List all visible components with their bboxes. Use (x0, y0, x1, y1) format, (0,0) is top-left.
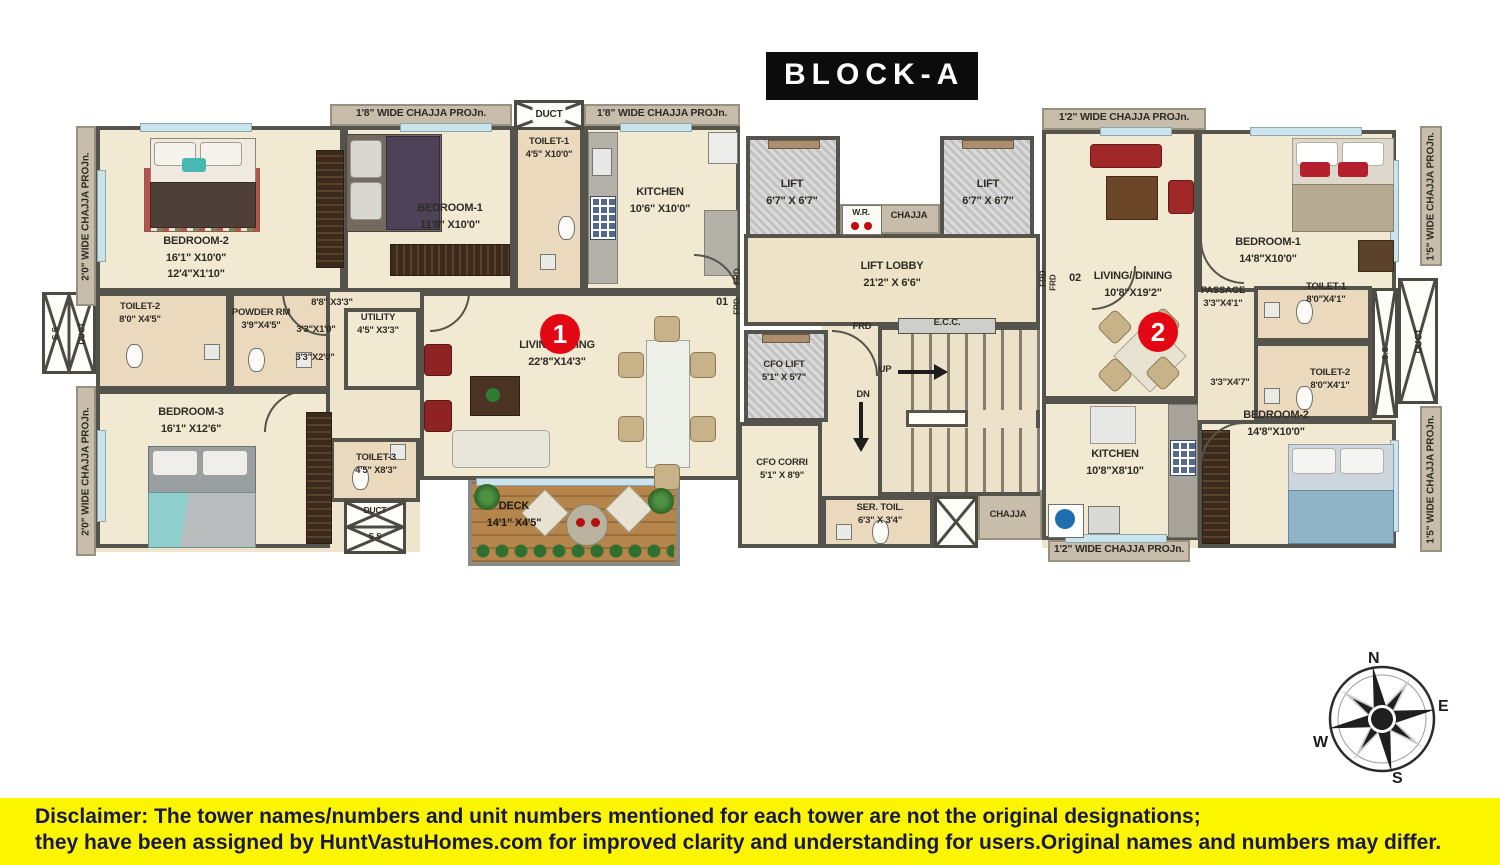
room-u1-toilet2 (96, 292, 230, 390)
deck-chair-cushion (591, 518, 600, 527)
label-u1-door-number: 01 (716, 294, 728, 311)
label-u2-bedroom1: BEDROOM-114'8"X10'0" (1235, 234, 1300, 267)
compass-east-label: E (1438, 698, 1449, 715)
window (620, 123, 692, 132)
pillow (202, 450, 248, 476)
chajja-top-right-label: 1'2" WIDE CHAJJA PROJn. (1059, 110, 1189, 126)
washbasin (204, 344, 220, 360)
label-cfo-corridor: CFO CORRI5'1" X 8'9" (756, 456, 808, 483)
block-title-text: BLOCK-A (784, 58, 964, 91)
lift-left-lintel (768, 140, 820, 149)
pillow (350, 140, 382, 178)
desk (1358, 240, 1394, 272)
kitchen-counter (1090, 406, 1136, 444)
chajja-left-top: 2'0" WIDE CHAJJA PROJn. (76, 126, 96, 306)
label-u1-dim-a: 3'3"X1'0" (296, 323, 335, 336)
room-cfo-corridor (738, 422, 822, 548)
page-title: BLOCK-A (766, 52, 978, 100)
bed-blanket (1292, 184, 1394, 232)
label-u2-dim-a: 3'3"X4'7" (1210, 376, 1249, 389)
label-cfo-lift: CFO LIFT5'1" X 5'7" (762, 358, 806, 385)
pillow-accent (182, 158, 206, 172)
label-ser-toilet: SER. TOIL.6'3" X 3'4" (857, 501, 904, 528)
deck-window-sill (476, 478, 674, 486)
toilet-fixture (126, 344, 143, 368)
dining-chair (690, 416, 716, 442)
accent-chair (424, 344, 452, 376)
duct-right-label: DUCT (1398, 278, 1438, 404)
label-u1-bedroom3: BEDROOM-316'1" X12'6" (158, 404, 223, 437)
washbasin (1264, 388, 1280, 404)
duct-top-label: DUCT (533, 107, 566, 122)
compass-north-label: N (1368, 650, 1380, 667)
dining-chair (654, 316, 680, 342)
label-u2-toilet1: TOILET-18'0"X4'1" (1306, 280, 1346, 307)
label-u1-powder: POWDER RM3'9"X4'5" (232, 306, 290, 333)
label-u1-bedroom1: BEDROOM-111'8" X10'0" (417, 200, 482, 233)
wr-red-dot (864, 222, 872, 230)
label-u2-toilet2: TOILET-28'0"X4'1" (1310, 366, 1350, 393)
disclaimer-line2: they have been assigned by HuntVastuHome… (35, 831, 1441, 855)
label-u1-bedroom2: BEDROOM-216'1" X10'0"12'4"X1'10" (163, 233, 228, 283)
washing-machine-door (1055, 509, 1075, 529)
staircase (878, 326, 1040, 496)
label-frd-bottom: FRD (853, 320, 872, 333)
unit1-badge: 1 (540, 314, 580, 354)
lift-right-lintel (962, 140, 1014, 149)
compass-west-label: W (1313, 734, 1329, 751)
label-lift-left: LIFT6'7" X 6'7" (766, 176, 817, 209)
dining-chair (654, 464, 680, 490)
label-lift-right: LIFT6'7" X 6'7" (962, 176, 1013, 209)
window (140, 123, 252, 132)
label-u1-frd: FRD (730, 292, 744, 320)
ss-toilet3-label: S.S (368, 530, 381, 543)
label-up: UP (879, 363, 892, 376)
pillow (1292, 448, 1336, 474)
duct-box-ser-toil (934, 496, 978, 548)
pillow-accent (1338, 162, 1368, 177)
washbasin (540, 254, 556, 270)
deck-plants-row (474, 542, 674, 560)
label-lobby-frd-left: FRD (730, 262, 744, 290)
label-u2-living: LIVING/ DINING10'8"X19'2" (1094, 268, 1172, 301)
label-wr: W.R. (852, 207, 870, 218)
dresser (390, 244, 510, 276)
chajja-bottom-right-label: 1'2" WIDE CHAJJA PROJn. (1054, 542, 1184, 558)
chajja-left-bottom: 2'0" WIDE CHAJJA PROJn. (76, 386, 96, 556)
fridge (708, 132, 738, 164)
label-ecc: E.C.C. (934, 316, 961, 329)
window (97, 170, 106, 262)
compass-rose: N E W S (1312, 645, 1452, 785)
pillow (350, 182, 382, 220)
stove (1170, 440, 1196, 476)
deck-plant (648, 488, 674, 514)
dining-chair (618, 416, 644, 442)
plant-pot (486, 388, 500, 402)
window (1250, 127, 1362, 136)
pillow (1340, 448, 1384, 474)
bed-blanket (148, 492, 256, 548)
accent-chair (1168, 180, 1194, 214)
wardrobe (316, 150, 344, 268)
label-u2-frd: FRD (1046, 268, 1060, 296)
chajja-top-2-label: 1'8" WIDE CHAJJA PROJn. (597, 106, 727, 122)
chajja-top-1-label: 1'8" WIDE CHAJJA PROJn. (356, 106, 486, 122)
toilet-fixture (558, 216, 575, 240)
bed-blanket (1288, 490, 1394, 544)
label-u1-deck: DECK14'1" X4'5" (487, 498, 541, 531)
label-u1-toilet2: TOILET-28'0" X4'5" (119, 300, 161, 327)
stove (590, 196, 616, 240)
kitchen-sink (592, 148, 612, 176)
label-u1-kitchen: KITCHEN10'6" X10'0" (630, 184, 690, 217)
deck-table (566, 504, 608, 546)
sofa (452, 430, 550, 468)
label-dn: DN (856, 388, 869, 401)
label-chajja-bottom-center: CHAJJA (990, 508, 1027, 521)
toilet-fixture (248, 348, 265, 372)
sofa (1090, 144, 1162, 168)
chajja-right-top: 1'5" WIDE CHAJJA PROJn. (1420, 126, 1442, 266)
stair-flight-down (896, 428, 1040, 492)
washbasin (1264, 302, 1280, 318)
wr-red-dot (851, 222, 859, 230)
ss-right-label: S.S (1372, 288, 1398, 418)
duct-label-far-left: DUCT (69, 292, 96, 374)
disclaimer-line1: Disclaimer: The tower names/numbers and … (35, 805, 1201, 829)
dining-table (646, 340, 690, 468)
ss-label-far-left: S.S (42, 292, 69, 374)
chajja-right-bottom: 1'5" WIDE CHAJJA PROJn. (1420, 406, 1442, 552)
up-arrow (896, 362, 948, 382)
cfo-lift-lintel (762, 334, 810, 343)
deck-chair-cushion (576, 518, 585, 527)
label-u2-bedroom2: BEDROOM-214'8"X10'0" (1243, 407, 1308, 440)
window (97, 430, 106, 522)
washbasin (836, 524, 852, 540)
dining-chair (690, 352, 716, 378)
label-u1-corridor: 8'8" X3'3" (311, 296, 353, 309)
label-u2-kitchen: KITCHEN10'8"X8'10" (1086, 446, 1144, 479)
label-u1-toilet3: TOILET-34'5" X8'3" (355, 451, 397, 478)
bed-blanket (150, 182, 256, 228)
compass-south-label: S (1392, 770, 1403, 785)
window (1100, 127, 1172, 136)
stair-landing (906, 410, 968, 427)
down-arrow (851, 400, 871, 452)
disclaimer-banner: Disclaimer: The tower names/numbers and … (0, 798, 1500, 865)
label-u2-passage: PASSAGE3'3"X4'1" (1201, 284, 1245, 311)
label-u1-toilet1: TOILET-14'5" X10'0" (526, 135, 573, 162)
pillow-accent (1300, 162, 1330, 177)
label-lift-lobby: LIFT LOBBY21'2" X 6'6" (861, 258, 924, 291)
accent-chair (424, 400, 452, 432)
wardrobe (306, 412, 332, 544)
pillow (152, 450, 198, 476)
label-chajja-top-center: CHAJJA (891, 209, 928, 222)
kitchen-sink (1088, 506, 1120, 534)
dining-chair (618, 352, 644, 378)
label-u2-door-number: 02 (1069, 270, 1081, 287)
label-u1-utility: UTILITY4'5" X3'3" (357, 311, 399, 338)
duct-toilet3-label: DUCT (364, 504, 387, 517)
unit2-badge: 2 (1138, 312, 1178, 352)
window (400, 123, 492, 132)
pillow (200, 142, 242, 166)
label-u1-dim-b: 3'3"X2'0" (295, 351, 334, 364)
disclaimer-label: Disclaimer: (35, 805, 148, 828)
coffee-table (1106, 176, 1158, 220)
